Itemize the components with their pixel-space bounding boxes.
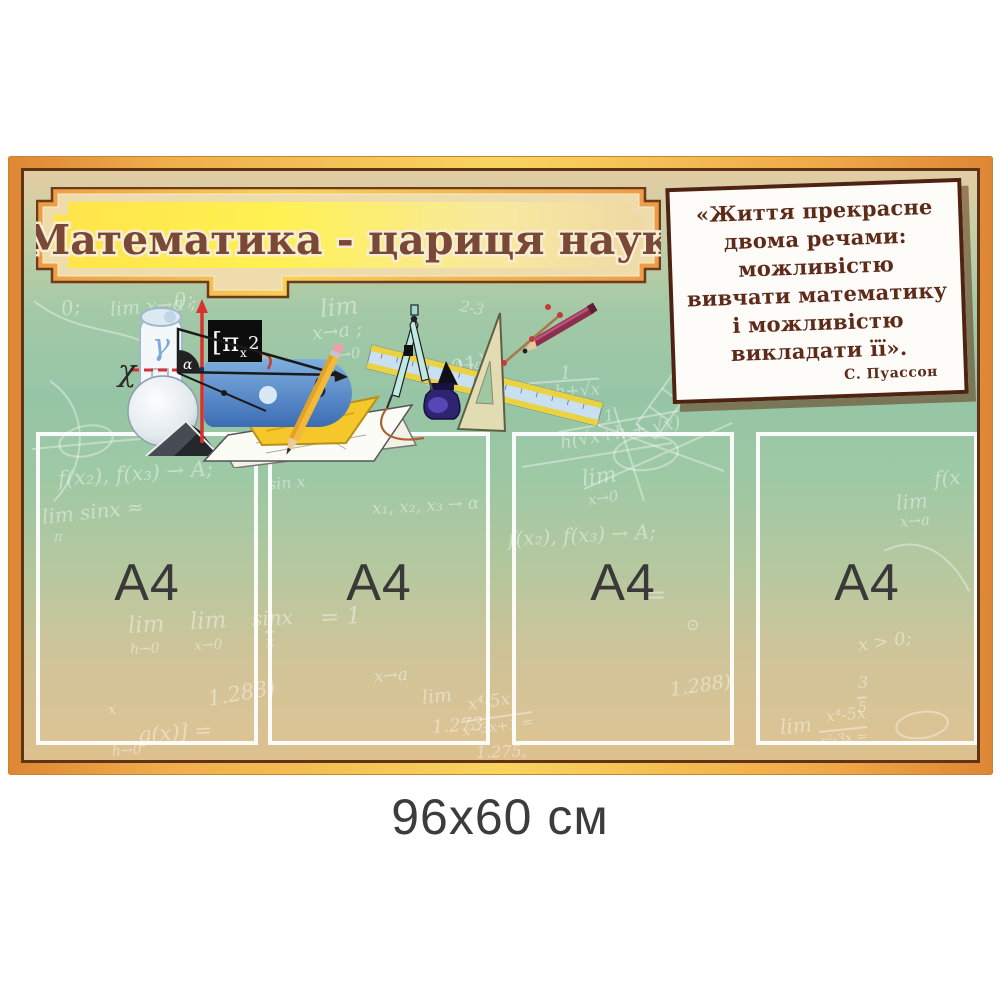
chi-letter: χ bbox=[116, 354, 138, 389]
quote-text: «Життя прекраснедвома речами:можливістюв… bbox=[682, 192, 952, 369]
stand-frame: 0;lim x→a ;0;limx→a ;x→02-3(.291)limx→00… bbox=[8, 156, 993, 775]
pocket-size-label: A4 bbox=[114, 553, 180, 613]
math-clipart-right bbox=[362, 299, 607, 454]
stand-board: 0;lim x→a ;0;limx→a ;x→02-3(.291)limx→00… bbox=[21, 168, 980, 763]
formula-text: h→0 bbox=[112, 743, 143, 759]
pocket-size-label: A4 bbox=[834, 553, 900, 613]
title-banner: Математика - цариця наук bbox=[36, 187, 661, 299]
quote-box: «Життя прекраснедвома речами:можливістюв… bbox=[665, 178, 968, 404]
pocket-size-label: A4 bbox=[346, 553, 412, 613]
formula-text: 0; bbox=[59, 296, 82, 319]
gamma-letter: γ bbox=[152, 328, 170, 363]
a4-pocket-4: A4 bbox=[756, 432, 978, 745]
burgundy-pencil-icon bbox=[523, 303, 598, 354]
a4-pocket-3: A4 bbox=[512, 432, 734, 745]
product-image: 0;lim x→a ;0;limx→a ;x→02-3(.291)limx→00… bbox=[0, 0, 1000, 1000]
alpha-letter: α bbox=[183, 357, 193, 373]
banner-title: Математика - цариця наук bbox=[36, 216, 661, 264]
pi-symbol-box-icon: [π x 2 bbox=[208, 320, 271, 369]
a4-pocket-2: A4 bbox=[268, 432, 490, 745]
size-caption: 96x60 см bbox=[0, 788, 1000, 846]
pocket-size-label: A4 bbox=[590, 553, 656, 613]
a4-pocket-1: A4 bbox=[36, 432, 258, 745]
formula-text: 1.275, bbox=[476, 743, 527, 761]
